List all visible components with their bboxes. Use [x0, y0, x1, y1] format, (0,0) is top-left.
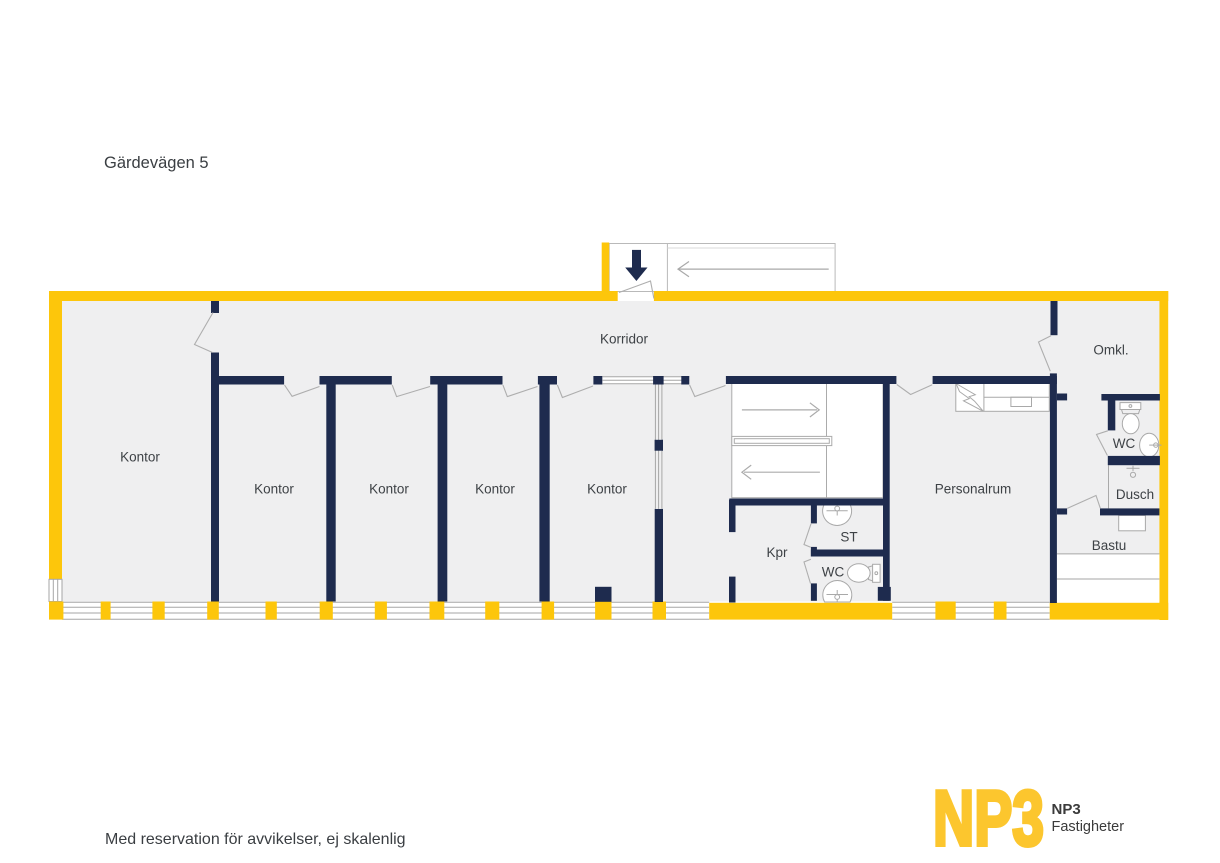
svg-text:NP3: NP3: [933, 774, 1044, 862]
svg-text:Dusch: Dusch: [1116, 487, 1154, 502]
svg-text:Omkl.: Omkl.: [1093, 343, 1128, 358]
svg-text:Kontor: Kontor: [587, 482, 627, 497]
svg-text:Personalrum: Personalrum: [935, 482, 1012, 497]
svg-text:Kontor: Kontor: [475, 482, 515, 497]
svg-text:Kontor: Kontor: [254, 482, 294, 497]
svg-text:Gärdevägen 5: Gärdevägen 5: [104, 154, 209, 172]
svg-text:Kpr: Kpr: [766, 545, 788, 560]
svg-text:WC: WC: [822, 565, 845, 580]
svg-text:Kontor: Kontor: [120, 450, 160, 465]
svg-text:Kontor: Kontor: [369, 482, 409, 497]
svg-text:WC: WC: [1113, 436, 1136, 451]
svg-text:Fastigheter: Fastigheter: [1052, 819, 1125, 835]
svg-text:Korridor: Korridor: [600, 332, 649, 347]
svg-text:Bastu: Bastu: [1092, 538, 1127, 553]
svg-text:ST: ST: [840, 530, 857, 545]
svg-text:NP3: NP3: [1052, 801, 1081, 818]
svg-text:Med reservation för avvikelser: Med reservation för avvikelser, ej skale…: [105, 831, 406, 848]
